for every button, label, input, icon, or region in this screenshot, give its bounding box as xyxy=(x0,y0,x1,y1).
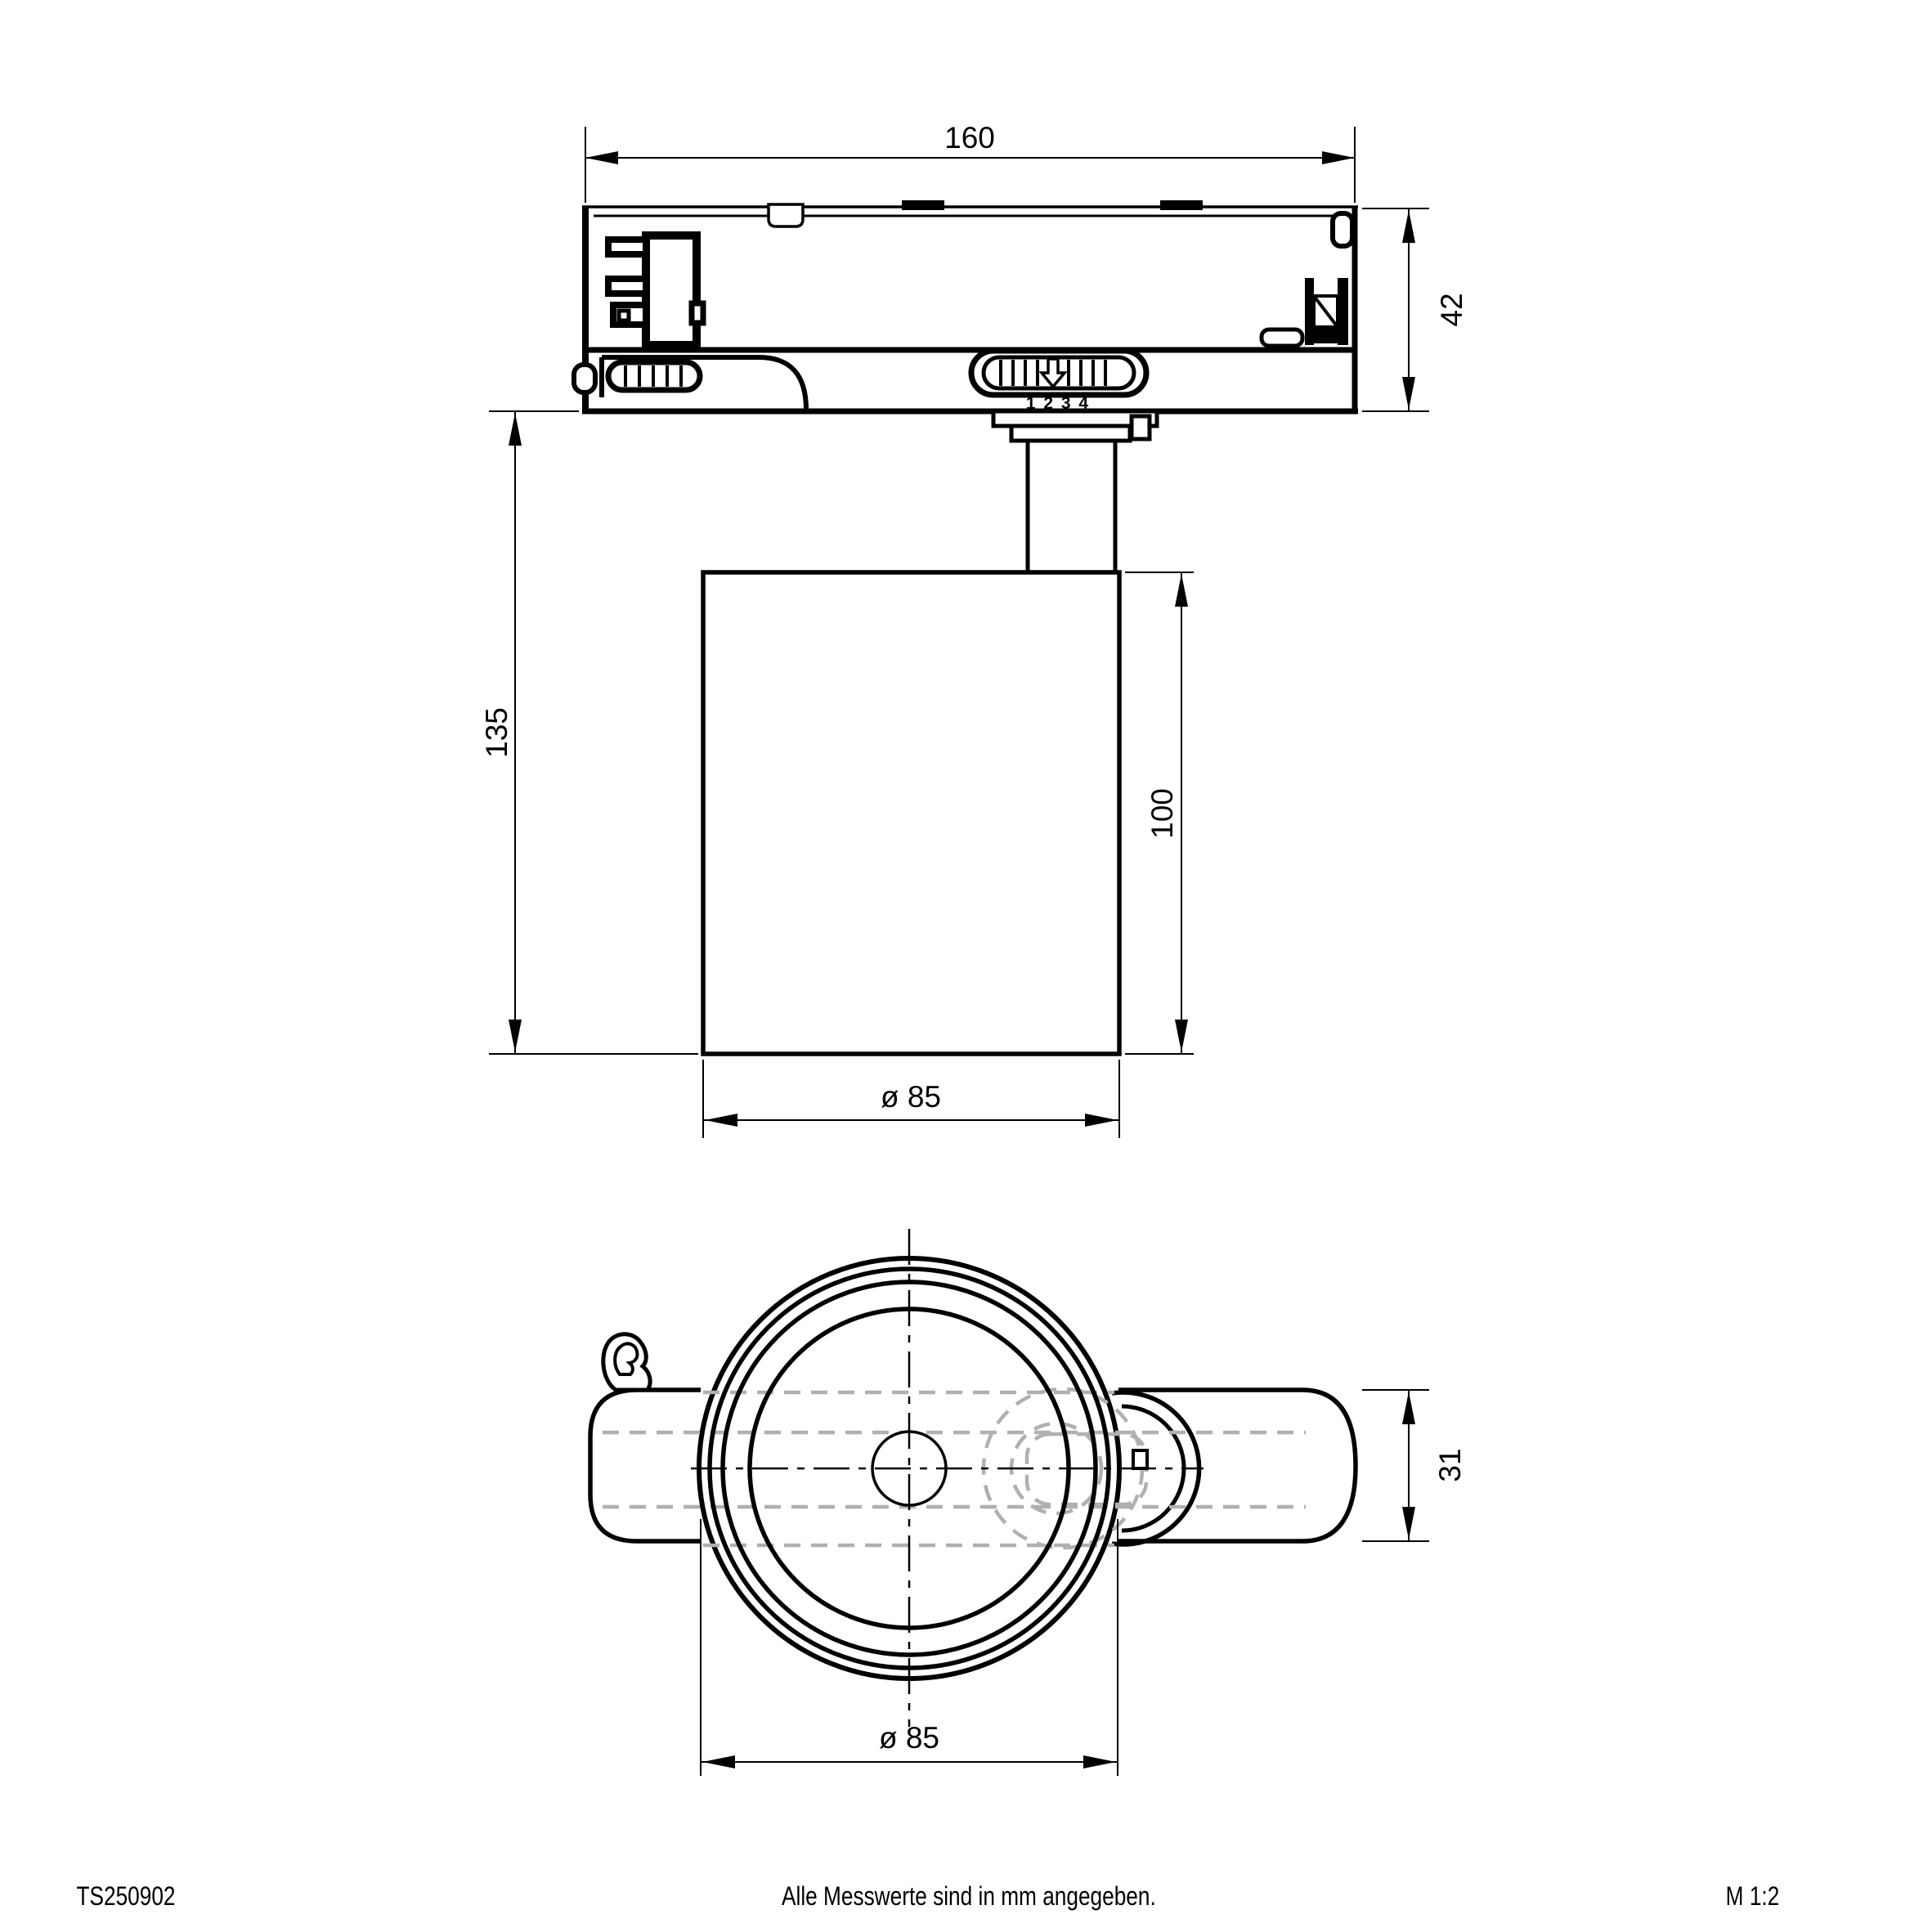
housing-right-notch xyxy=(1333,213,1352,246)
mount-stem xyxy=(993,411,1157,572)
release-latch-ear xyxy=(603,1334,650,1390)
arrowhead-right xyxy=(1083,1755,1116,1768)
dim-label-adapter-height: 42 xyxy=(1435,293,1468,326)
arrowhead-down xyxy=(1402,1507,1415,1540)
contact-body xyxy=(646,235,697,345)
housing-top-tab-right xyxy=(1160,200,1203,210)
terminal-base xyxy=(1314,329,1348,343)
contact-side-tab xyxy=(692,303,703,323)
terminal-diagonal xyxy=(1314,296,1338,327)
arrowhead-up xyxy=(1402,1392,1415,1424)
track-right-cap xyxy=(1302,1390,1356,1541)
latch-knob xyxy=(574,365,595,392)
locking-latch xyxy=(574,357,806,410)
dimension-adapter-height-42: 42 xyxy=(1362,208,1468,411)
phase-selector-switch: 1 2 3 4 xyxy=(971,351,1146,413)
arrowhead-left xyxy=(702,1755,735,1768)
housing-top-tab-left xyxy=(902,200,944,210)
dimension-width-160: 160 xyxy=(585,121,1355,203)
arrowhead-up xyxy=(509,413,522,446)
arrowhead-left xyxy=(705,1114,737,1127)
bottom-view: 31 ø 85 xyxy=(590,1229,1467,1776)
article-number: TS250902 xyxy=(76,1883,175,1912)
arrowhead-down xyxy=(509,1020,522,1052)
dimension-body-height-100: 100 xyxy=(1125,572,1194,1054)
dim-label-overall-height: 135 xyxy=(480,707,513,758)
flange-lower xyxy=(1011,426,1130,441)
track-spotlight-dimension-drawing: 1 2 3 4 160 xyxy=(0,0,1932,1932)
scale-label: M 1:2 xyxy=(1726,1883,1780,1912)
side-view: 1 2 3 4 160 xyxy=(480,121,1468,1138)
dimension-overall-height-135: 135 xyxy=(480,411,698,1054)
dimension-track-width-31: 31 xyxy=(1362,1390,1467,1541)
pivot-clip xyxy=(1133,1450,1147,1468)
housing-top-notch xyxy=(769,204,803,226)
spotlight-cylinder xyxy=(703,572,1119,1054)
dim-label-body-height: 100 xyxy=(1145,788,1179,839)
footer: TS250902 Alle Messwerte sind in mm angeg… xyxy=(76,1883,1779,1912)
contact-prong-hole xyxy=(619,311,629,321)
contact-prong-middle xyxy=(608,279,646,294)
terminal-detail xyxy=(1262,278,1348,346)
arrowhead-down xyxy=(1175,1020,1188,1052)
measurement-note: Alle Messwerte sind in mm angegeben. xyxy=(782,1883,1156,1912)
arrowhead-up xyxy=(1402,210,1415,243)
contact-prong-top xyxy=(608,240,646,254)
dim-label-diameter-bottom: ø 85 xyxy=(879,1721,939,1755)
contact-block xyxy=(608,235,703,345)
arrowhead-left xyxy=(585,151,618,164)
arrowhead-up xyxy=(1175,574,1188,607)
dim-label-width: 160 xyxy=(944,121,995,155)
dim-label-track-width: 31 xyxy=(1433,1448,1467,1481)
technical-drawing-page: 1 2 3 4 160 xyxy=(0,0,1932,1932)
track-left-cap xyxy=(590,1390,652,1541)
flange-hook xyxy=(1132,416,1150,439)
arrowhead-right xyxy=(1322,151,1355,164)
dim-label-diameter-side: ø 85 xyxy=(881,1080,941,1114)
terminal-tab xyxy=(1262,329,1302,346)
arrowhead-down xyxy=(1402,377,1415,410)
arrowhead-right xyxy=(1085,1114,1118,1127)
dimension-diameter-side-85: ø 85 xyxy=(703,1060,1119,1138)
